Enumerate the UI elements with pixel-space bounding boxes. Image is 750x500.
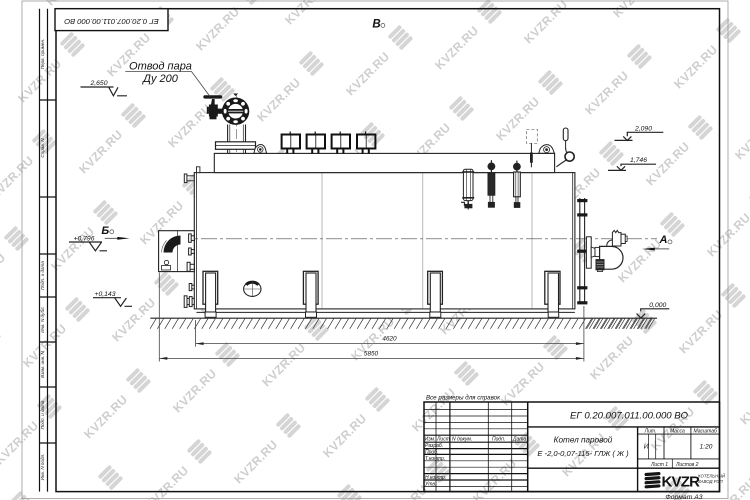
svg-text:Ду 200: Ду 200 [141, 73, 179, 85]
svg-text:5850: 5850 [364, 350, 379, 357]
svg-text:Лист 1: Лист 1 [650, 462, 668, 468]
svg-text:Подп. и дата: Подп. и дата [40, 400, 45, 429]
svg-text:Справ. N: Справ. N [40, 138, 45, 158]
svg-text:Утв.: Утв. [425, 481, 436, 487]
svg-text:Все размеры для справок: Все размеры для справок [426, 395, 501, 402]
svg-text:Формат А3: Формат А3 [665, 494, 702, 500]
svg-text:1,746: 1,746 [630, 157, 647, 164]
svg-text:1:20: 1:20 [700, 444, 713, 451]
svg-text:ЗАВОД РЭП: ЗАВОД РЭП [698, 479, 724, 484]
svg-text:Е -2,0-0,07-115- ГЛЖ ( Ж ): Е -2,0-0,07-115- ГЛЖ ( Ж ) [537, 449, 629, 458]
svg-text:Разраб.: Разраб. [425, 443, 443, 449]
svg-text:Лит.: Лит. [644, 429, 657, 435]
svg-text:ЕГ 0.20.007.011.00.000 ВО: ЕГ 0.20.007.011.00.000 ВО [570, 411, 688, 422]
svg-text:Лист: Лист [436, 437, 450, 443]
svg-text:Инв. N дубл.: Инв. N дубл. [40, 306, 45, 333]
svg-text:N докум.: N докум. [452, 437, 472, 443]
svg-text:2,650: 2,650 [89, 80, 107, 87]
svg-text:ЕГ 0.20.007.011.00.000 ВО: ЕГ 0.20.007.011.00.000 ВО [64, 17, 159, 26]
svg-text:В: В [372, 19, 380, 31]
svg-text:Перв. примен.: Перв. примен. [40, 39, 45, 70]
svg-text:KVZR: KVZR [662, 474, 701, 491]
svg-text:А: А [659, 234, 668, 246]
svg-text:Котел паровой: Котел паровой [554, 436, 613, 445]
svg-text:Дата: Дата [512, 437, 526, 443]
svg-text:Подп. и дата: Подп. и дата [40, 261, 45, 290]
svg-text:Взам. инв. N: Взам. инв. N [40, 350, 45, 377]
svg-text:Н.контр.: Н.контр. [425, 475, 446, 481]
svg-text:2,090: 2,090 [634, 125, 652, 132]
svg-text:0,000: 0,000 [649, 302, 666, 309]
svg-text:КОТЕЛЬНЫЙ: КОТЕЛЬНЫЙ [698, 474, 726, 479]
svg-text:Т.контр.: Т.контр. [425, 456, 445, 462]
svg-text:Листов 2: Листов 2 [675, 462, 699, 468]
svg-text:Масса: Масса [670, 429, 685, 435]
svg-text:Инв. N подл.: Инв. N подл. [40, 454, 45, 481]
svg-text:+0,796: +0,796 [74, 235, 95, 242]
svg-text:Масштаб: Масштаб [694, 429, 718, 435]
svg-text:Б: Б [101, 225, 109, 237]
svg-text:Проб.: Проб. [425, 449, 438, 455]
svg-text:Изм.: Изм. [425, 437, 436, 443]
svg-text:Подп.: Подп. [492, 437, 505, 443]
svg-text:4620: 4620 [382, 336, 397, 343]
svg-text:Отвод пара: Отвод пара [129, 61, 192, 73]
